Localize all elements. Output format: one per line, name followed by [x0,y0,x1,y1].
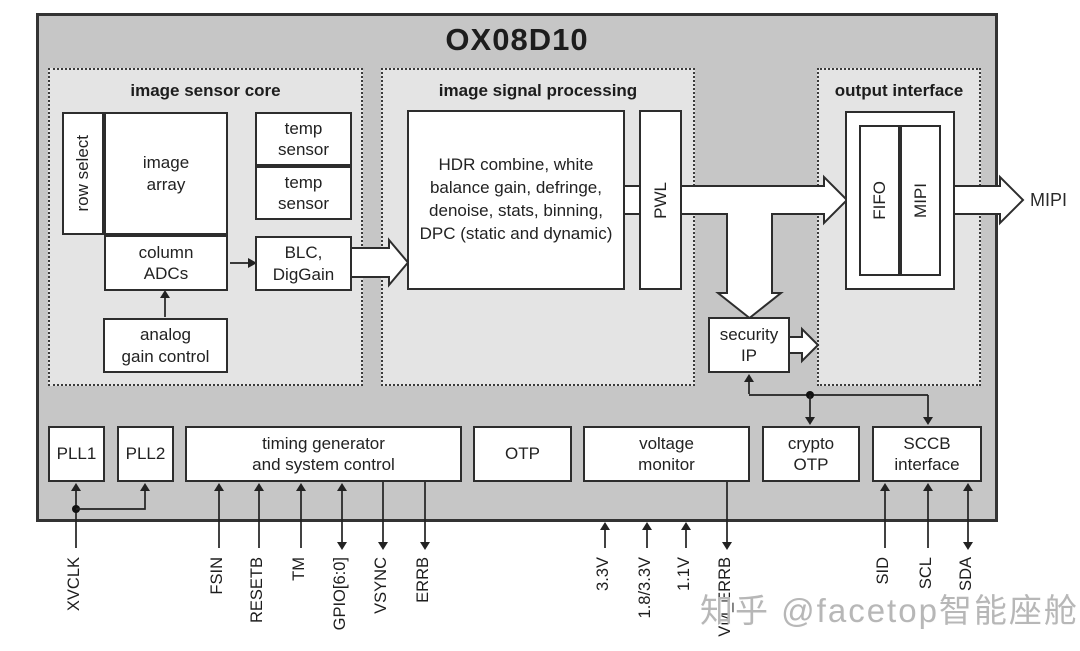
pin-label-errb: ERRB [414,557,436,603]
block-sccb-interface: SCCB interface [872,426,982,482]
block-isp-pipeline: HDR combine, white balance gain, defring… [407,110,625,290]
section-title-image-signal-processing: image signal processing [383,81,693,101]
block-pwl: PWL [639,110,682,290]
section-title-image-sensor-core: image sensor core [50,81,361,101]
section-title-output-interface: output interface [819,81,979,101]
mipi-bus-label: MIPI [1030,190,1067,211]
block-crypto-otp: crypto OTP [762,426,860,482]
pin-line-1v1 [681,522,691,548]
pin-label-vsync: VSYNC [372,557,394,614]
block-row-select: row select [62,112,104,235]
watermark: 知乎 @facetop智能座舱 [700,584,1079,632]
pin-line-1v8-3v3 [642,522,652,548]
pin-label-xvclk: XVCLK [65,557,87,611]
pin-label-1v1: 1.1V [675,557,697,591]
block-pll2: PLL2 [117,426,174,482]
pin-line-3v3 [600,522,610,548]
pin-label-fsin: FSIN [208,557,230,595]
block-analog-gain-control: analog gain control [103,318,228,373]
pin-label-sid: SID [874,557,896,585]
block-blc-diggain: BLC, DigGain [255,236,352,291]
pin-label-1v8-3v3: 1.8/3.3V [636,557,658,618]
block-fifo: FIFO [859,125,900,276]
block-fifo-mipi-group: FIFO MIPI [845,111,955,290]
block-image-array: image array [104,112,228,235]
block-column-adcs: column ADCs [104,235,228,291]
block-otp: OTP [473,426,572,482]
pin-label-3v3: 3.3V [594,557,616,591]
block-pll1: PLL1 [48,426,105,482]
block-mipi: MIPI [900,125,941,276]
block-voltage-monitor: voltage monitor [583,426,750,482]
block-temp-sensor-2: temp sensor [255,166,352,220]
chip-block-diagram: OX08D10 image sensor core image signal p… [0,0,1080,651]
pin-label-resetb: RESETB [248,557,270,623]
block-timing-generator: timing generator and system control [185,426,462,482]
pin-label-gpio: GPIO[6:0] [331,557,353,630]
block-security-ip: security IP [708,317,790,373]
chip-title: OX08D10 [36,22,998,58]
block-temp-sensor-1: temp sensor [255,112,352,166]
pin-label-tm: TM [290,557,312,581]
